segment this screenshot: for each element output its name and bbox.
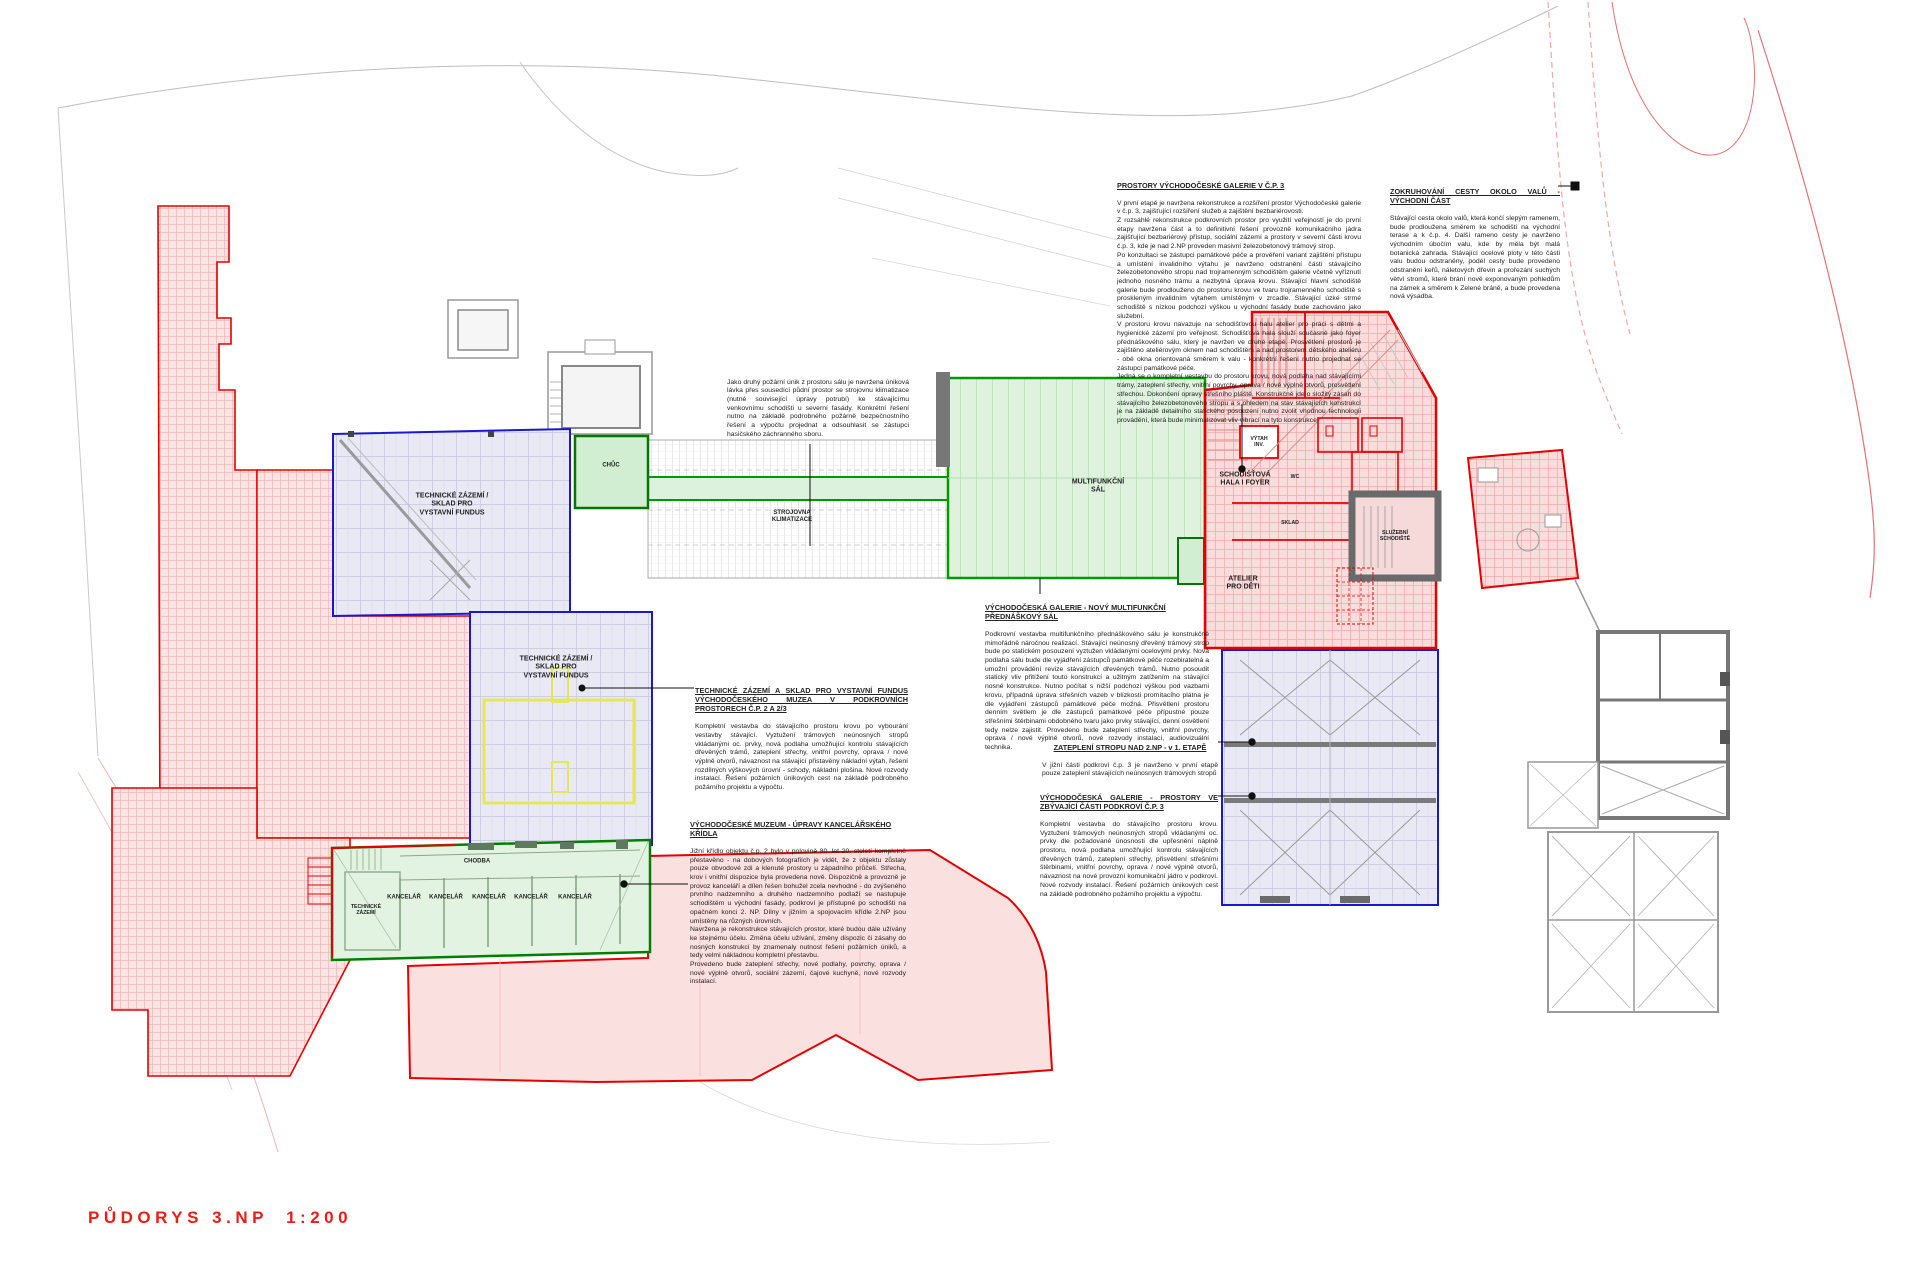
annotation-technicke-zazemi-sklad: TECHNICKÉ ZÁZEMÍ A SKLAD PRO VYSTAVNÍ FU… (695, 677, 908, 802)
leader-dot (621, 881, 627, 887)
annotation-heading: ZATEPLENÍ STROPU NAD 2.NP - v 1. ETAPĚ (1042, 743, 1218, 752)
green-hala-notch (1178, 538, 1204, 584)
room-label-atelier-pro-deti: ATELIER PRO DĚTI (1226, 576, 1259, 593)
annotation-body: Stávající cesta okolo valů, která končí … (1390, 215, 1560, 302)
annotation-prostory-galerie: PROSTORY VÝCHODOČESKÉ GALERIE V Č.P. 3 V… (1117, 172, 1361, 434)
room-label-sklad: SKLAD (1281, 520, 1299, 526)
annotation-heading: PROSTORY VÝCHODOČESKÉ GALERIE V Č.P. 3 (1117, 181, 1361, 190)
green-chuc-box (575, 436, 648, 508)
annotation-zokruhovani-cesty: ZOKRUHOVÁNÍ CESTY OKOLO VALŮ - VÝCHODNÍ … (1390, 178, 1560, 311)
annotation-pozarni-unik: Jako druhý požární únik z prostoru sálu … (727, 370, 909, 448)
leader-dot (579, 685, 585, 691)
room-label-wc: WC (1291, 474, 1300, 480)
drawing-title: PŮDORYS 3.NP 1:200 (88, 1208, 352, 1228)
room-label-technicke-zazemi-office: TECHNICKÉ ZÁZEMÍ (351, 904, 381, 916)
floor-plan-drawing (0, 0, 1920, 1280)
room-label-schodistova-hala: SCHODIŠŤOVÁ HALA I FOYER (1219, 472, 1270, 489)
annotation-heading: VÝCHODOČESKÁ GALERIE - PROSTORY VE ZBÝVA… (1040, 793, 1218, 812)
annotation-heading: VÝCHODOČESKÁ GALERIE - NOVÝ MULTIFUNKČNÍ… (985, 603, 1209, 622)
room-label-kancelar-5: KANCELÁŘ (558, 894, 592, 901)
green-corridor (648, 477, 950, 500)
leader-dot (1249, 739, 1255, 745)
room-label-strojovna: STROJOVNA KLIMATIZACE (772, 510, 812, 524)
annotation-kancelarske-kridlo: VÝCHODOČESKÉ MUZEUM - ÚPRAVY KANCELÁŘSKÉ… (690, 811, 906, 996)
annotation-heading: ZOKRUHOVÁNÍ CESTY OKOLO VALŮ - VÝCHODNÍ … (1390, 187, 1560, 206)
room-label-chuc: CHŮC (602, 462, 619, 469)
blue-upper-attic (333, 429, 570, 616)
annotation-heading: TECHNICKÉ ZÁZEMÍ A SKLAD PRO VYSTAVNÍ FU… (695, 686, 908, 714)
room-label-kancelar-4: KANCELÁŘ (514, 894, 548, 901)
site-plan-page: PROSTORY VÝCHODOČESKÉ GALERIE V Č.P. 3 V… (0, 0, 1920, 1280)
annotation-body: V jižní části podkroví č.p. 3 je navržen… (1042, 762, 1218, 779)
annotation-body: Kompletní vestavba do stávajícího prosto… (695, 723, 908, 793)
pink-west-wing (158, 206, 257, 838)
room-label-chodba: CHODBA (464, 858, 490, 865)
room-label-technicke-zazemi-fundus-upper: TECHNICKÉ ZÁZEMÍ / SKLAD PRO VYSTAVNÍ FU… (416, 492, 489, 517)
room-label-vytah-inv: VÝTAH INV. (1250, 436, 1267, 448)
blue-center-attic (470, 612, 652, 845)
room-label-kancelar-3: KANCELÁŘ (472, 894, 506, 901)
annotation-body: Jako druhý požární únik z prostoru sálu … (727, 379, 909, 440)
leader-square-marker (1571, 182, 1579, 190)
annotation-body: Kompletní vestavba do stávajícího prosto… (1040, 821, 1218, 899)
annotation-body: Jižní křídlo objektu č.p. 2 bylo v polov… (690, 848, 906, 987)
room-label-technicke-zazemi-fundus-center: TECHNICKÉ ZÁZEMÍ / SKLAD PRO VYSTAVNÍ FU… (520, 655, 593, 680)
annotation-prostory-podkrovi: VÝCHODOČESKÁ GALERIE - PROSTORY VE ZBÝVA… (1040, 784, 1218, 908)
annotation-zatepleni-stropu: ZATEPLENÍ STROPU NAD 2.NP - v 1. ETAPĚ V… (1042, 734, 1218, 788)
east-context-buildings (1528, 580, 1730, 1012)
annotation-body: V první etapě je navržena rekonstrukce a… (1117, 200, 1361, 426)
room-label-sluzebni-schodiste: SLUŽEBNÍ SCHODIŠTĚ (1380, 530, 1410, 542)
room-label-multifunkcni-sal: MULTIFUNKČNÍ SÁL (1072, 479, 1124, 496)
room-label-kancelar-2: KANCELÁŘ (429, 894, 463, 901)
annotation-heading: VÝCHODOČESKÉ MUZEUM - ÚPRAVY KANCELÁŘSKÉ… (690, 820, 906, 839)
room-label-kancelar-1: KANCELÁŘ (387, 894, 421, 901)
leader-dot (1249, 793, 1255, 799)
